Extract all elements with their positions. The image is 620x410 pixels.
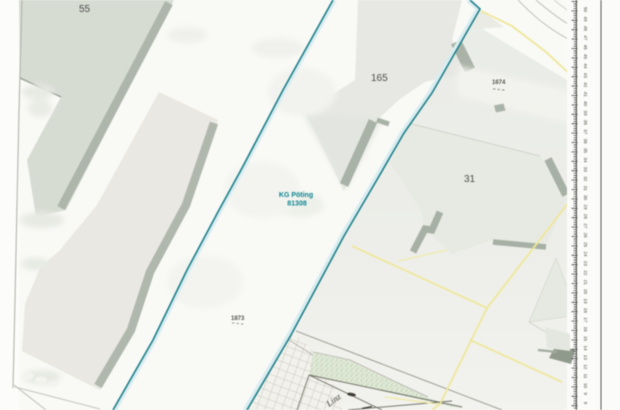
svg-text:14: 14 — [583, 345, 588, 351]
svg-text:39: 39 — [583, 110, 588, 116]
svg-text:10: 10 — [583, 383, 588, 389]
svg-text:41: 41 — [583, 92, 588, 98]
svg-text:46: 46 — [583, 45, 588, 51]
svg-text:23: 23 — [583, 261, 588, 267]
svg-text:8: 8 — [583, 402, 588, 405]
svg-text:42: 42 — [583, 82, 588, 88]
svg-text:29: 29 — [583, 204, 588, 210]
svg-text:31: 31 — [583, 186, 588, 192]
svg-text:21: 21 — [583, 280, 588, 286]
svg-text:19: 19 — [583, 298, 588, 304]
svg-text:30: 30 — [583, 195, 588, 201]
svg-text:22: 22 — [583, 270, 588, 276]
svg-text:1873: 1873 — [231, 316, 245, 322]
svg-text:38: 38 — [583, 120, 588, 126]
svg-text:47: 47 — [583, 35, 588, 41]
svg-text:48: 48 — [583, 26, 588, 32]
svg-text:1674: 1674 — [492, 80, 506, 86]
svg-text:27: 27 — [583, 223, 588, 229]
svg-text:28: 28 — [583, 214, 588, 220]
svg-text:35: 35 — [583, 148, 588, 154]
svg-text:40: 40 — [583, 101, 588, 107]
svg-text:16: 16 — [583, 327, 588, 333]
svg-text:9: 9 — [583, 392, 588, 395]
svg-text:11: 11 — [583, 374, 588, 379]
svg-text:25: 25 — [583, 242, 588, 248]
svg-text:32: 32 — [583, 176, 588, 182]
svg-text:33: 33 — [583, 167, 588, 173]
svg-text:13: 13 — [583, 355, 588, 361]
svg-text:49: 49 — [583, 16, 588, 22]
svg-text:17: 17 — [583, 317, 588, 323]
svg-text:81308: 81308 — [287, 201, 307, 208]
svg-text:50: 50 — [583, 7, 588, 13]
svg-text:44: 44 — [583, 63, 588, 69]
svg-text:31: 31 — [464, 174, 476, 185]
svg-text:165: 165 — [371, 73, 388, 84]
svg-text:20: 20 — [583, 289, 588, 295]
svg-text:15: 15 — [583, 336, 588, 342]
svg-text:24: 24 — [583, 251, 588, 257]
svg-text:34: 34 — [583, 157, 588, 163]
svg-text:36: 36 — [583, 139, 588, 145]
svg-text:18: 18 — [583, 308, 588, 314]
svg-text:45: 45 — [583, 54, 588, 60]
svg-text:43: 43 — [583, 73, 588, 79]
svg-text:12: 12 — [583, 364, 588, 370]
svg-text:26: 26 — [583, 233, 588, 239]
svg-text:37: 37 — [583, 129, 588, 135]
svg-text:55: 55 — [79, 4, 91, 15]
svg-text:KG Pöting: KG Pöting — [279, 192, 313, 199]
